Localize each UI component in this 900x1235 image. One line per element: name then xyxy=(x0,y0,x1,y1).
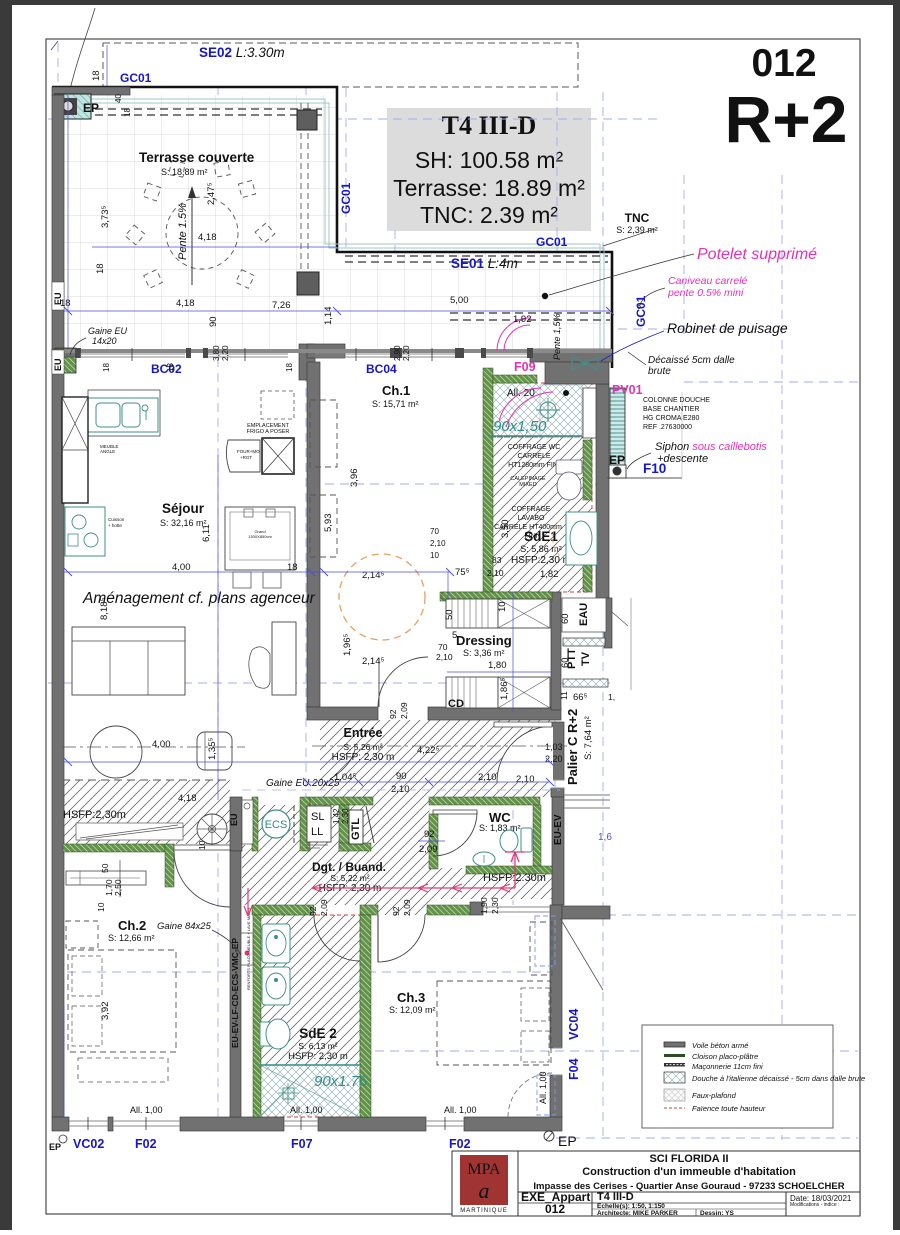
svg-text:EP: EP xyxy=(558,1133,577,1149)
svg-text:1,04⁵: 1,04⁵ xyxy=(334,772,356,783)
svg-text:18: 18 xyxy=(287,562,298,573)
svg-text:+RGT: +RGT xyxy=(240,455,252,460)
svg-text:90x1,50: 90x1,50 xyxy=(493,418,547,435)
svg-text:1,92: 1,92 xyxy=(513,314,532,325)
svg-text:GTL: GTL xyxy=(350,818,362,840)
svg-text:18: 18 xyxy=(285,363,294,372)
svg-text:BASE CHANTIER: BASE CHANTIER xyxy=(643,406,699,413)
svg-text:VC04: VC04 xyxy=(567,1009,581,1040)
svg-text:S: 32,16 m²: S: 32,16 m² xyxy=(160,518,207,528)
svg-text:90: 90 xyxy=(208,316,219,327)
svg-text:3,50: 3,50 xyxy=(500,520,511,539)
svg-text:Décaissé 5cm dalle: Décaissé 5cm dalle xyxy=(648,355,735,366)
svg-text:Gaine EU 20x25: Gaine EU 20x25 xyxy=(266,778,340,789)
svg-text:2,20: 2,20 xyxy=(402,345,411,361)
svg-text:CD: CD xyxy=(448,698,464,710)
svg-text:1,80: 1,80 xyxy=(488,660,507,671)
svg-text:Aménagement cf. plans agenceur: Aménagement cf. plans agenceur xyxy=(82,590,316,607)
svg-text:2,09: 2,09 xyxy=(399,702,409,719)
svg-text:Voile béton armé: Voile béton armé xyxy=(692,1041,748,1050)
svg-text:92: 92 xyxy=(388,709,398,719)
svg-text:18: 18 xyxy=(166,363,175,372)
svg-text:GC01: GC01 xyxy=(339,182,353,214)
svg-text:All. 1,00: All. 1,00 xyxy=(290,1105,323,1115)
svg-text:1,03: 1,03 xyxy=(545,742,563,752)
svg-text:10: 10 xyxy=(197,840,207,850)
svg-text:REF .27630000: REF .27630000 xyxy=(643,424,692,431)
svg-text:HT1280mm FINI: HT1280mm FINI xyxy=(508,462,560,469)
svg-text:F02: F02 xyxy=(449,1137,471,1151)
svg-text:2,09: 2,09 xyxy=(419,844,438,855)
svg-text:CARRELE: CARRELE xyxy=(517,453,550,460)
svg-text:Dessin: YS: Dessin: YS xyxy=(700,1210,735,1217)
svg-text:GC01: GC01 xyxy=(634,295,648,327)
svg-text:Faux-plafond: Faux-plafond xyxy=(692,1091,737,1100)
svg-text:EU: EU xyxy=(229,813,239,826)
svg-text:1,96⁵: 1,96⁵ xyxy=(342,634,353,656)
svg-text:EP: EP xyxy=(83,101,99,115)
svg-text:66⁵: 66⁵ xyxy=(573,692,588,703)
svg-text:Pente 1,5%: Pente 1,5% xyxy=(552,313,562,360)
svg-text:F09: F09 xyxy=(514,360,536,374)
svg-text:EU-EV-LF-CD-ECS-VMC-EP: EU-EV-LF-CD-ECS-VMC-EP xyxy=(230,938,240,1048)
svg-text:3,80: 3,80 xyxy=(212,345,221,361)
svg-text:70: 70 xyxy=(438,642,448,652)
svg-text:2,47⁵: 2,47⁵ xyxy=(206,183,217,205)
svg-text:Gaine EU: Gaine EU xyxy=(88,326,128,336)
svg-text:4,22⁵: 4,22⁵ xyxy=(417,745,439,756)
svg-text:Douche à l'italienne décaissé: Douche à l'italienne décaissé - 5cm dans… xyxy=(692,1074,865,1083)
svg-text:8,18⁵: 8,18⁵ xyxy=(99,598,110,620)
svg-text:1,35⁵: 1,35⁵ xyxy=(207,738,218,760)
svg-text:2,10: 2,10 xyxy=(430,539,446,548)
svg-text:1,90: 1,90 xyxy=(479,897,489,914)
svg-text:5,00: 5,00 xyxy=(450,295,469,306)
svg-text:2,30: 2,30 xyxy=(490,897,500,914)
svg-text:2,14⁵: 2,14⁵ xyxy=(362,656,384,667)
svg-text:BC04: BC04 xyxy=(366,362,397,376)
svg-text:11: 11 xyxy=(559,691,569,700)
svg-text:18: 18 xyxy=(102,363,111,372)
svg-text:2,90: 2,90 xyxy=(393,345,402,361)
svg-text:Entrée: Entrée xyxy=(344,726,383,740)
svg-text:2,10: 2,10 xyxy=(391,784,410,795)
svg-text:2,10: 2,10 xyxy=(478,772,497,783)
svg-text:T4 III-D: T4 III-D xyxy=(442,111,537,140)
svg-text:1,42: 1,42 xyxy=(332,808,341,824)
svg-text:75⁵: 75⁵ xyxy=(455,567,470,578)
svg-text:Faïence toute hauteur: Faïence toute hauteur xyxy=(692,1104,766,1113)
svg-text:GC01: GC01 xyxy=(120,71,152,85)
svg-text:ECS: ECS xyxy=(265,819,288,831)
svg-text:S: 3,36 m²: S: 3,36 m² xyxy=(463,648,505,658)
svg-text:50: 50 xyxy=(444,609,455,620)
svg-text:1300X850cm: 1300X850cm xyxy=(248,534,272,539)
svg-text:18: 18 xyxy=(91,70,102,81)
svg-text:92: 92 xyxy=(424,829,435,840)
svg-text:COLONNE DOUCHE: COLONNE DOUCHE xyxy=(643,397,710,404)
svg-text:All. 1,00: All. 1,00 xyxy=(444,1105,477,1115)
svg-text:All. 1,00: All. 1,00 xyxy=(130,1105,163,1115)
svg-text:4,18: 4,18 xyxy=(198,232,217,243)
svg-text:VC02: VC02 xyxy=(73,1137,104,1151)
svg-text:10: 10 xyxy=(497,601,508,612)
svg-text:F02: F02 xyxy=(135,1137,157,1151)
svg-text:COFFRAGE: COFFRAGE xyxy=(512,506,551,513)
svg-text:1,86⁵: 1,86⁵ xyxy=(499,678,510,700)
svg-text:S: 12,66 m²: S: 12,66 m² xyxy=(108,933,155,943)
svg-text:Terrasse couverte: Terrasse couverte xyxy=(139,150,255,165)
svg-text:Palier C R+2: Palier C R+2 xyxy=(565,709,580,785)
svg-text:S: 5,22 m²: S: 5,22 m² xyxy=(330,873,369,883)
svg-text:Echelle(s): 1:50, 1:150: Echelle(s): 1:50, 1:150 xyxy=(597,1203,665,1210)
svg-text:2,20: 2,20 xyxy=(221,345,230,361)
svg-text:ANGLE: ANGLE xyxy=(100,449,115,454)
svg-text:1,: 1, xyxy=(608,692,615,702)
svg-text:18: 18 xyxy=(123,108,132,117)
svg-text:T4 III-D: T4 III-D xyxy=(597,1191,634,1203)
svg-text:Ch.2: Ch.2 xyxy=(118,918,146,933)
svg-text:Cloison placo-plâtre: Cloison placo-plâtre xyxy=(692,1052,758,1061)
svg-text:F04: F04 xyxy=(567,1058,581,1080)
svg-text:Dressing: Dressing xyxy=(456,633,512,648)
svg-text:MIXED: MIXED xyxy=(519,482,536,488)
svg-text:Cuisson: Cuisson xyxy=(108,517,125,522)
svg-text:SL: SL xyxy=(311,811,324,823)
svg-text:SdE 2: SdE 2 xyxy=(299,1026,337,1041)
svg-text:Maçonnerie 11cm fini: Maçonnerie 11cm fini xyxy=(692,1062,763,1071)
svg-text:Construction d'un immeuble d'h: Construction d'un immeuble d'habitation xyxy=(582,1166,796,1178)
svg-text:5: 5 xyxy=(452,630,457,641)
svg-text:2,30: 2,30 xyxy=(341,808,350,824)
svg-text:COFFRAGE WC: COFFRAGE WC xyxy=(508,444,561,451)
svg-text:Ch.1: Ch.1 xyxy=(382,383,410,398)
svg-text:RENFORTS PLACO MEUBLE + LAVE M: RENFORTS PLACO MEUBLE + LAVE MAINS xyxy=(246,907,251,990)
svg-text:2,09: 2,09 xyxy=(319,899,329,916)
svg-text:6,11: 6,11 xyxy=(201,524,212,542)
svg-text:GC01: GC01 xyxy=(536,235,568,249)
svg-text:2,10: 2,10 xyxy=(436,652,453,662)
svg-text:Siphon sous caillebotis: Siphon sous caillebotis xyxy=(655,441,767,453)
svg-text:4,18: 4,18 xyxy=(178,793,197,804)
svg-text:SE01 L:4m: SE01 L:4m xyxy=(451,256,518,271)
svg-text:EAU: EAU xyxy=(578,603,590,626)
svg-text:14x20: 14x20 xyxy=(92,336,117,346)
svg-text:7,26: 7,26 xyxy=(272,300,291,311)
svg-text:SCI FLORIDA II: SCI FLORIDA II xyxy=(649,1153,728,1165)
svg-text:S: 15,71 m²: S: 15,71 m² xyxy=(372,399,419,409)
svg-text:92: 92 xyxy=(308,906,318,916)
svg-text:3,92: 3,92 xyxy=(100,1002,111,1021)
svg-text:Modifications - indice :: Modifications - indice : xyxy=(790,1202,839,1208)
svg-text:HSFP:2,30m: HSFP:2,30m xyxy=(63,809,126,821)
svg-text:SH: 100.58 m²: SH: 100.58 m² xyxy=(415,147,564,173)
svg-text:70: 70 xyxy=(430,527,439,536)
svg-text:4,00: 4,00 xyxy=(152,739,171,750)
svg-text:S: 6,13 m²: S: 6,13 m² xyxy=(298,1041,337,1051)
svg-text:3,73⁵: 3,73⁵ xyxy=(100,206,111,228)
svg-text:10: 10 xyxy=(96,902,106,912)
svg-text:MPA: MPA xyxy=(467,1161,501,1178)
svg-text:F07: F07 xyxy=(291,1137,313,1151)
svg-text:S: 12,09 m²: S: 12,09 m² xyxy=(389,1005,436,1015)
svg-text:18: 18 xyxy=(95,263,106,274)
svg-text:2,09: 2,09 xyxy=(402,899,412,916)
svg-text:90: 90 xyxy=(396,771,407,782)
svg-text:4,18: 4,18 xyxy=(176,298,195,309)
svg-text:2,50: 2,50 xyxy=(113,879,123,896)
svg-text:Caniveau carrelé: Caniveau carrelé xyxy=(668,275,748,287)
svg-text:60: 60 xyxy=(560,613,571,624)
svg-text:Ch.3: Ch.3 xyxy=(397,990,425,1005)
svg-text:a: a xyxy=(479,1178,490,1203)
svg-text:012: 012 xyxy=(751,42,816,85)
svg-text:EU: EU xyxy=(53,358,63,371)
svg-text:60: 60 xyxy=(560,657,571,668)
svg-text:012: 012 xyxy=(545,1202,565,1216)
svg-text:Dgt. / Buand.: Dgt. / Buand. xyxy=(312,860,386,874)
svg-text:HSFP: 2,30 m: HSFP: 2,30 m xyxy=(288,1051,348,1062)
svg-text:FRIGO A POSER: FRIGO A POSER xyxy=(247,429,290,435)
svg-text:TNC: TNC xyxy=(625,211,650,225)
svg-text:HSFP:2,30 m: HSFP:2,30 m xyxy=(511,555,571,566)
svg-text:5,93: 5,93 xyxy=(323,514,334,533)
svg-text:S: 5,26 m²: S: 5,26 m² xyxy=(343,742,382,752)
svg-text:1,6: 1,6 xyxy=(598,832,612,843)
svg-text:SE02 L:3.30m: SE02 L:3.30m xyxy=(199,45,285,60)
svg-text:50: 50 xyxy=(100,863,110,873)
svg-text:1,14: 1,14 xyxy=(323,307,334,326)
svg-text:10: 10 xyxy=(430,551,439,560)
svg-text:TV: TV xyxy=(580,651,592,666)
svg-text:Architecte: MIKE PARKER: Architecte: MIKE PARKER xyxy=(597,1210,678,1217)
svg-text:18: 18 xyxy=(60,298,71,309)
svg-text:Potelet supprimé: Potelet supprimé xyxy=(697,246,817,263)
svg-text:TNC: 2.39 m²: TNC: 2.39 m² xyxy=(420,202,558,228)
svg-text:2,10: 2,10 xyxy=(487,568,504,578)
svg-text:HSFP: 2,30 m: HSFP: 2,30 m xyxy=(332,752,395,763)
svg-text:HG CROMA E280: HG CROMA E280 xyxy=(643,415,700,422)
svg-text:40: 40 xyxy=(114,94,123,103)
svg-text:PV01: PV01 xyxy=(612,383,643,397)
svg-text:LL: LL xyxy=(311,826,323,838)
svg-text:EU-EV: EU-EV xyxy=(553,814,564,845)
svg-text:Terrasse: 18.89 m²: Terrasse: 18.89 m² xyxy=(393,175,585,201)
svg-text:2,10: 2,10 xyxy=(516,774,535,785)
svg-text:brute: brute xyxy=(648,366,671,377)
svg-text:S: 18,89 m²: S: 18,89 m² xyxy=(161,167,208,177)
svg-text:1,82: 1,82 xyxy=(540,569,559,580)
svg-text:MARTINIQUE: MARTINIQUE xyxy=(460,1208,508,1214)
svg-text:Robinet de puisage: Robinet de puisage xyxy=(667,320,788,336)
svg-text:3,96: 3,96 xyxy=(349,469,360,488)
svg-text:Pente 1.5%: Pente 1.5% xyxy=(177,203,189,260)
svg-text:Séjour: Séjour xyxy=(162,501,205,516)
svg-text:pente 0.5% mini: pente 0.5% mini xyxy=(667,287,744,299)
svg-text:Gaine 84x25: Gaine 84x25 xyxy=(157,921,212,932)
svg-text:EP: EP xyxy=(49,1142,61,1152)
svg-text:+ hotte: + hotte xyxy=(108,523,122,528)
svg-text:83: 83 xyxy=(492,555,502,565)
svg-text:90x1.76: 90x1.76 xyxy=(314,1073,368,1090)
svg-text:All. 1,00: All. 1,00 xyxy=(538,1071,548,1104)
svg-text:LAVABO: LAVABO xyxy=(518,515,546,522)
svg-text:R+2: R+2 xyxy=(725,82,848,156)
svg-text:4,00: 4,00 xyxy=(172,562,191,573)
svg-text:FOUR+MO: FOUR+MO xyxy=(237,449,260,454)
svg-text:92: 92 xyxy=(391,906,401,916)
svg-text:S: 7,64 m²: S: 7,64 m² xyxy=(583,716,594,760)
svg-text:+descente: +descente xyxy=(657,453,708,465)
